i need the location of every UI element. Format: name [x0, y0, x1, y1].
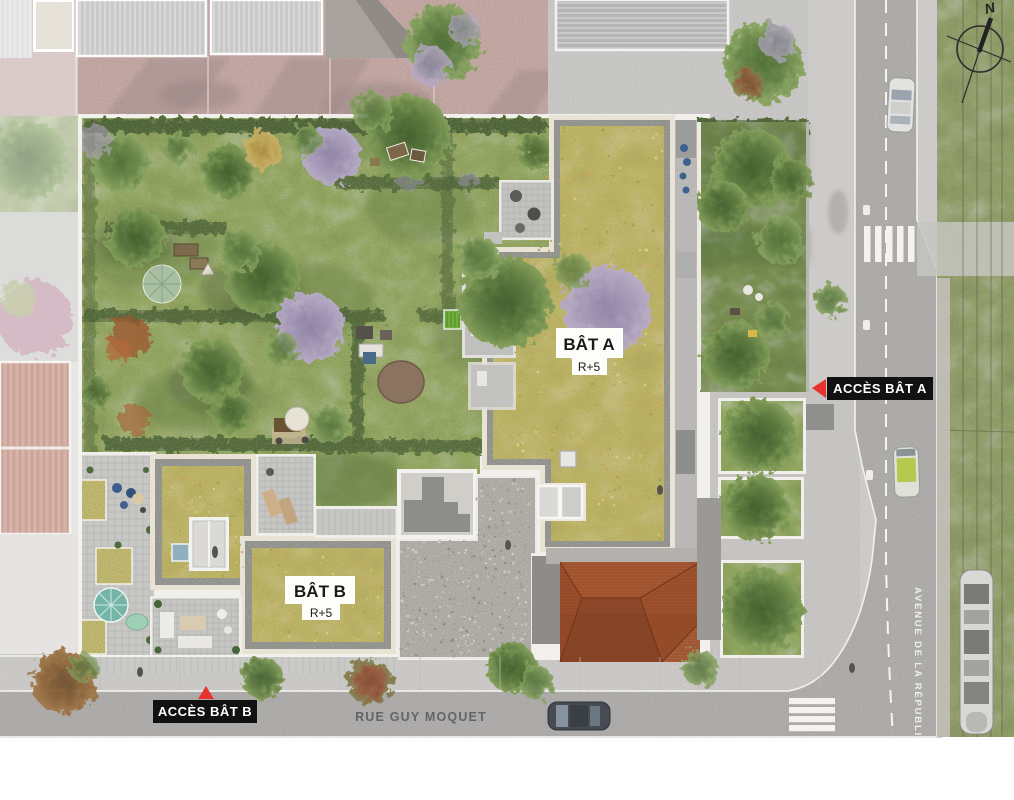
svg-text:ACCÈS BÂT A: ACCÈS BÂT A	[833, 381, 927, 396]
svg-text:ACCÈS BÂT B: ACCÈS BÂT B	[158, 704, 252, 719]
svg-text:R+5: R+5	[310, 606, 333, 620]
svg-text:RUE GUY MOQUET: RUE GUY MOQUET	[355, 710, 487, 724]
svg-text:BÂT A: BÂT A	[563, 335, 614, 354]
svg-text:BÂT B: BÂT B	[294, 582, 346, 601]
svg-text:R+5: R+5	[578, 360, 601, 374]
svg-text:AVENUE DE LA RÉPUBLIQUE: AVENUE DE LA RÉPUBLIQUE	[912, 587, 923, 763]
